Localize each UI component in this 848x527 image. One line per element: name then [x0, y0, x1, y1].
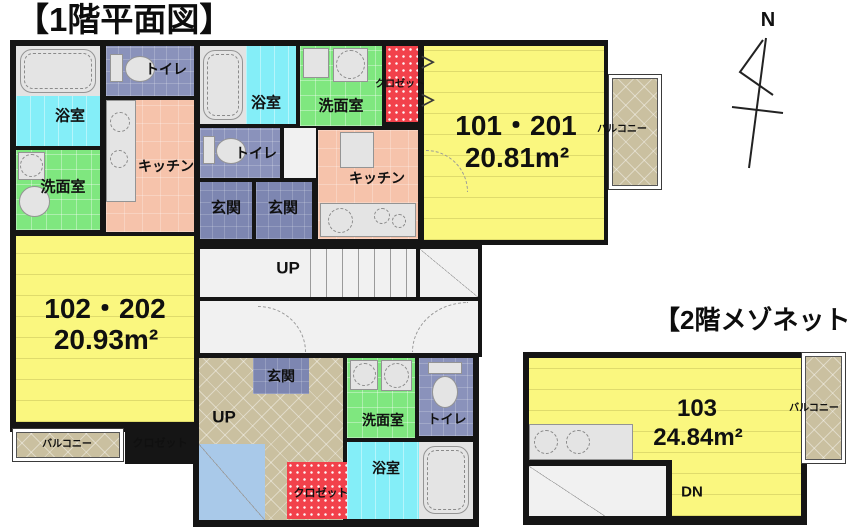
washer-circle-unit101 [336, 50, 365, 79]
label-washroom-unit103: 洗面室 [362, 413, 404, 427]
label-balcony-unit102: バルコニー [42, 440, 92, 450]
sink-circle-2f-a [534, 430, 558, 454]
label-washroom-unit101: 洗面室 [318, 99, 363, 114]
label-up-stair-1f: UP [276, 260, 300, 277]
stair-up-unit103 [199, 444, 265, 520]
bathtub-unit101 [203, 50, 243, 120]
toilet-bowl-unit103 [432, 376, 458, 408]
floorplan-canvas: ＞ ＞ 浴室 洗面室 トイレ キッチン 102・202 20.93m² バルコニ… [0, 0, 848, 527]
hall-center [284, 128, 316, 178]
bathtub-unit103-inner [427, 450, 465, 510]
label-toilet-unit103: トイレ [427, 413, 466, 426]
room-bathroom-unit103 [347, 442, 419, 519]
stair-down-2f [529, 466, 605, 516]
bathtub-unit102-inner [24, 53, 92, 89]
label-down-2f: DN [681, 485, 703, 500]
label-kitchen-unit101: キッチン [349, 171, 405, 185]
label-toilet-unit102: トイレ [145, 62, 187, 76]
toilet-tank-center [203, 136, 215, 164]
label-unit102-name: 102・202 [44, 295, 165, 323]
label-washroom-unit102: 洗面室 [40, 180, 85, 195]
burner-circle-unit102 [110, 150, 128, 168]
title-floor1: 【1階平面図】 [16, 3, 232, 36]
label-closet-unit102: クロゼット [133, 439, 188, 450]
stair-landing-1f [420, 249, 478, 297]
folding-door-icon-bottom: ＞ [420, 94, 436, 110]
sink-circle-unit102 [110, 112, 130, 132]
burner-circle-unit101-b [392, 214, 406, 228]
washer-unit101-a [303, 48, 329, 78]
wall-2f-stair-right [666, 460, 672, 516]
compass-icon [720, 4, 820, 174]
label-entrance-c: 玄関 [267, 369, 295, 383]
label-unit101-name: 101・201 [455, 112, 576, 140]
toilet-tank-unit103 [428, 362, 462, 374]
label-up-unit103: UP [212, 409, 236, 426]
label-unit101-area: 20.81m² [465, 144, 569, 172]
room-bathroom-unit101 [246, 46, 296, 124]
sink-circle-2f-b [566, 430, 590, 454]
stair-treads-1f [310, 249, 416, 297]
fridge-unit101 [340, 132, 374, 168]
bathtub-unit103 [423, 446, 469, 514]
sink-circle-unit101 [328, 208, 353, 233]
label-closet-unit101: クロゼット [375, 80, 425, 90]
label-bathroom-unit101: 浴室 [251, 96, 281, 111]
stair-hall-2f [605, 466, 666, 516]
label-closet-unit103: クロゼット [294, 489, 349, 500]
bathtub-unit101-inner [207, 54, 239, 116]
title-floor2: 【2階メゾネット】 [654, 307, 848, 333]
washer-circle-unit102 [20, 154, 43, 177]
washer-circle-unit103-b [384, 363, 409, 388]
burner-circle-unit101-a [374, 208, 390, 224]
folding-door-icon-top: ＞ [420, 56, 436, 72]
label-bathroom-unit102: 浴室 [55, 109, 85, 124]
label-entrance-b: 玄関 [268, 201, 298, 216]
bathtub-unit102 [20, 49, 96, 93]
label-bathroom-unit103: 浴室 [372, 461, 400, 475]
label-balcony-unit103: バルコニー [789, 404, 839, 414]
label-unit103-area: 24.84m² [653, 426, 742, 450]
label-balcony-unit101: バルコニー [597, 125, 647, 135]
label-kitchen-unit102: キッチン [138, 159, 194, 173]
label-unit103-name: 103 [677, 397, 717, 421]
label-unit102-area: 20.93m² [54, 326, 158, 354]
label-toilet-center: トイレ [235, 146, 277, 160]
washer-circle-unit103-a [353, 363, 376, 386]
label-entrance-a: 玄関 [211, 201, 241, 216]
toilet-tank-unit102 [110, 54, 123, 82]
